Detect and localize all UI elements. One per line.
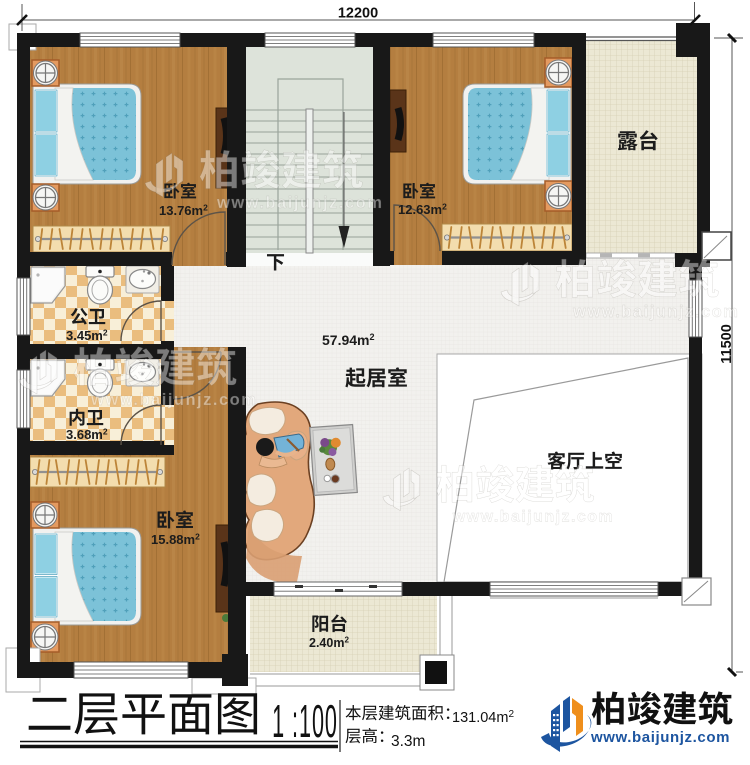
svg-text:www.baijunjz.com: www.baijunjz.com — [216, 194, 383, 212]
svg-text:131.04m2: 131.04m2 — [452, 709, 514, 726]
svg-text:15.88m2: 15.88m2 — [151, 532, 200, 548]
svg-text:www.baijunjz.com: www.baijunjz.com — [572, 303, 739, 321]
svg-text:3.45m2: 3.45m2 — [66, 328, 108, 344]
svg-text:57.94m2: 57.94m2 — [322, 332, 375, 348]
svg-text:3.68m2: 3.68m2 — [66, 427, 108, 443]
svg-text:13.76m2: 13.76m2 — [159, 203, 208, 219]
svg-text:1 :100: 1 :100 — [272, 695, 338, 747]
svg-text:12200: 12200 — [338, 6, 378, 22]
svg-text:2.40m2: 2.40m2 — [309, 636, 349, 650]
svg-text:12.63m2: 12.63m2 — [398, 202, 447, 218]
svg-text:www.baijunjz.com: www.baijunjz.com — [90, 391, 257, 409]
svg-text:www.baijunjz.com: www.baijunjz.com — [590, 729, 730, 746]
svg-text:www.baijunjz.com: www.baijunjz.com — [452, 508, 614, 525]
svg-text:11500: 11500 — [719, 324, 735, 364]
svg-text:3.3m: 3.3m — [391, 733, 425, 750]
